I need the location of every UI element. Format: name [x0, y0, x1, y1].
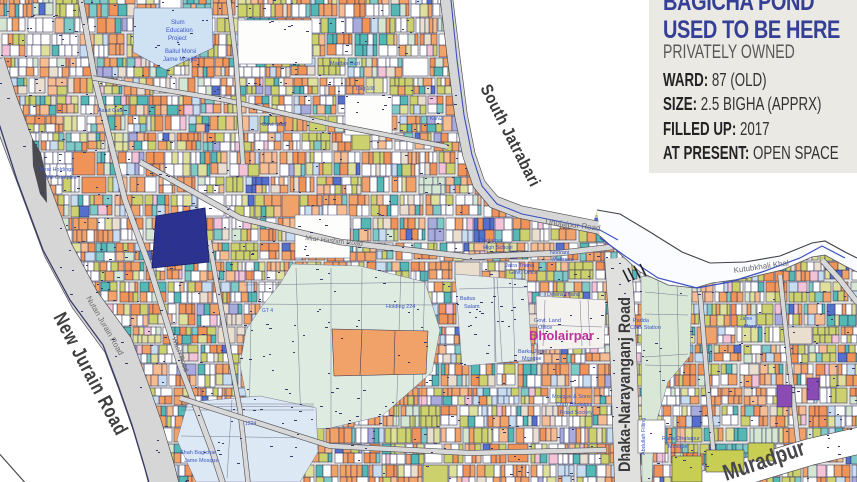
svg-text:Jame Mosjid: Jame Mosjid: [163, 57, 197, 63]
svg-text:Mosque: Mosque: [668, 444, 688, 450]
svg-text:Dewra Thana: Dewra Thana: [547, 292, 581, 298]
svg-text:Mosque: Mosque: [522, 356, 542, 362]
svg-text:Jatra Thana: Jatra Thana: [505, 263, 535, 269]
svg-text:Education: Education: [166, 28, 193, 34]
svg-text:Shah Bagichar: Shah Bagichar: [180, 450, 216, 456]
svg-text:Project: Project: [168, 36, 187, 42]
svg-text:Noorani: Noorani: [550, 250, 569, 256]
svg-text:Padda: Padda: [633, 318, 650, 324]
svg-text:CNG Station: CNG Station: [630, 325, 661, 331]
svg-text:Abdullah Filling: Abdullah Filling: [641, 418, 647, 455]
svg-text:Govt Staff: Govt Staff: [262, 122, 287, 128]
svg-text:Corp Dholaipur: Corp Dholaipur: [556, 402, 593, 408]
svg-text:Dhaka-Narayanganj Road: Dhaka-Narayanganj Road: [616, 297, 634, 472]
svg-text:High School: High School: [483, 245, 513, 251]
svg-text:1224: 1224: [245, 421, 256, 427]
svg-text:Slum: Slum: [171, 20, 185, 26]
svg-text:Road Society: Road Society: [560, 410, 593, 416]
svg-text:Mosque & Sons: Mosque & Sons: [552, 394, 591, 400]
svg-text:KaN2: KaN2: [430, 116, 443, 122]
svg-text:Best Holdings: Best Holdings: [40, 167, 74, 173]
svg-text:Dholaipur: Dholaipur: [479, 238, 503, 244]
svg-text:Dhil Complex: Dhil Complex: [44, 175, 77, 181]
svg-text:Govt. Office: Govt. Office: [509, 270, 538, 276]
svg-text:Baitul Morsi: Baitul Morsi: [165, 49, 196, 55]
svg-text:Rafia Dholaipur: Rafia Dholaipur: [662, 436, 700, 442]
svg-text:Madbor Bari: Madbor Bari: [330, 61, 360, 67]
svg-text:Madrasa: Madrasa: [552, 257, 574, 263]
svg-text:Govt. Land: Govt. Land: [534, 318, 561, 324]
svg-text:Mosque: Mosque: [744, 324, 762, 330]
svg-text:Baitus: Baitus: [460, 296, 476, 302]
svg-text:Jame Mosque: Jame Mosque: [184, 458, 219, 464]
svg-text:Jame: Jame: [740, 316, 752, 322]
svg-text:GT 4: GT 4: [262, 308, 273, 314]
svg-text:Barka Jame: Barka Jame: [518, 349, 547, 355]
svg-text:Holding 224: Holding 224: [386, 304, 415, 310]
svg-text:Dag 108: Dag 108: [356, 86, 375, 92]
svg-text:Office: Office: [538, 325, 552, 331]
